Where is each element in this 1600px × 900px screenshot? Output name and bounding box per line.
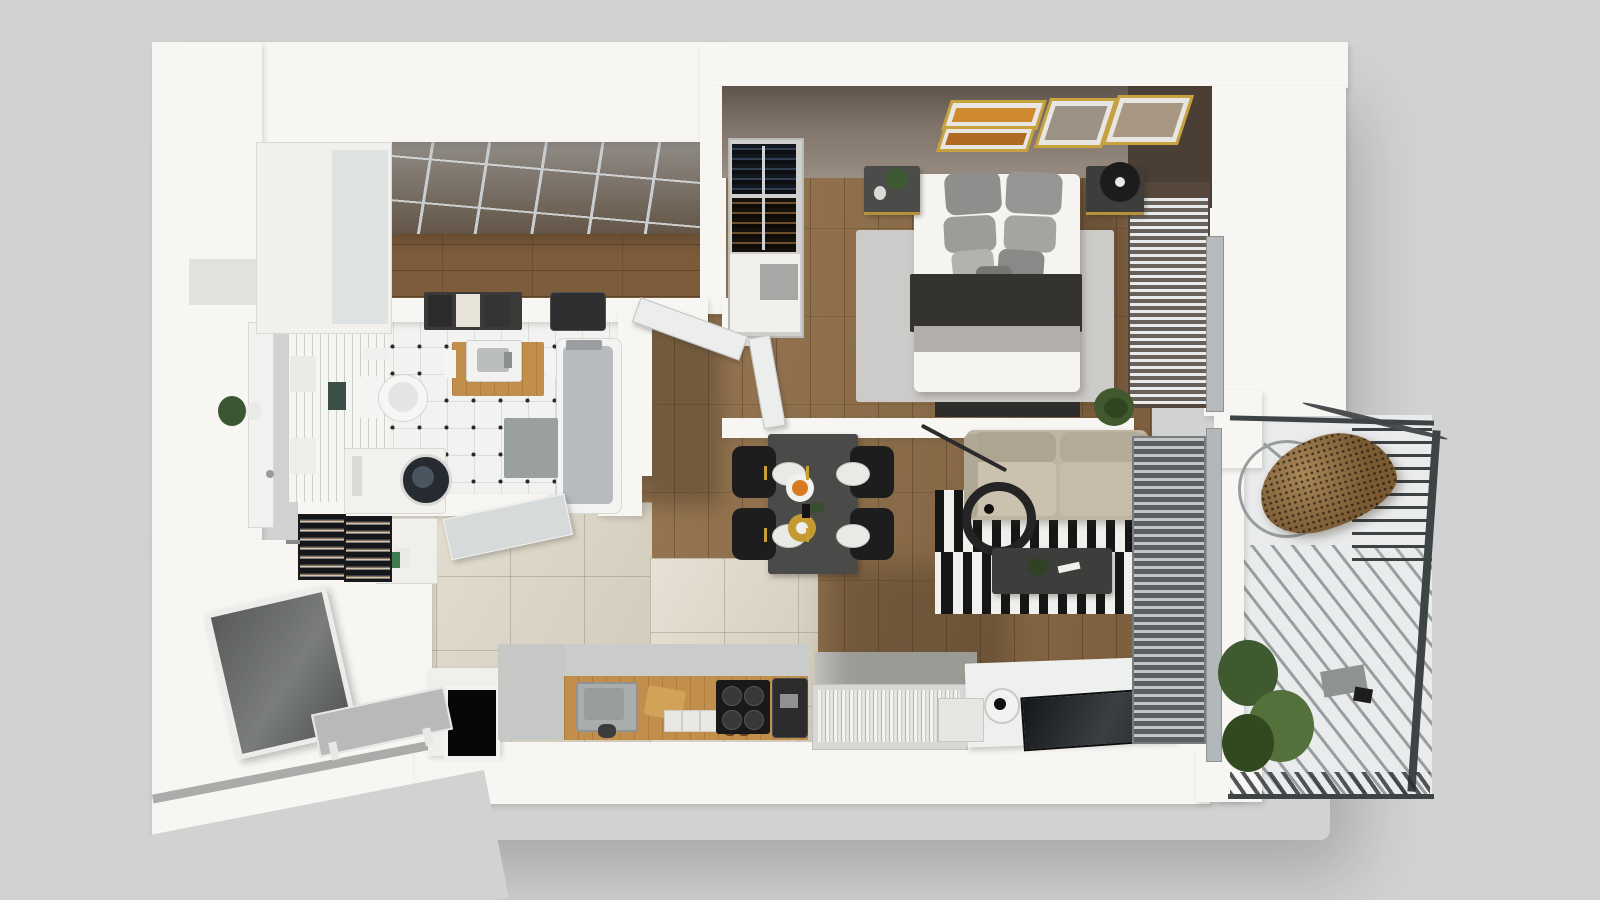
- table-greenery: [810, 502, 824, 513]
- bench-storage-box: [938, 698, 984, 742]
- gold-cutlery: [764, 466, 767, 480]
- bedroom-window-blinds: [1130, 198, 1208, 404]
- bed-pillow: [943, 215, 997, 254]
- bench-towel-dark: [428, 295, 452, 327]
- bedroom-corner-plant-leaf: [1104, 398, 1128, 418]
- shower-room-vase: [246, 402, 262, 420]
- balcony-floor-item: [1353, 687, 1373, 704]
- shower-room-plant: [218, 396, 246, 426]
- bathtub-faucet: [566, 340, 602, 350]
- bath-mat: [504, 418, 558, 478]
- dining-chair: [732, 508, 776, 560]
- coat-rack-hangers: [344, 516, 392, 582]
- coat-rack-hangers: [298, 514, 346, 580]
- place-setting-plate: [836, 524, 870, 548]
- bed-pillow: [944, 170, 1003, 216]
- hob-burner: [744, 686, 764, 706]
- door-shower-room: [248, 322, 274, 528]
- picture-frame-2: [936, 126, 1036, 152]
- bathtub-basin: [563, 346, 613, 504]
- kitchen-counter-gray: [498, 644, 570, 740]
- bed-gray-blanket: [914, 326, 1080, 352]
- canister: [664, 710, 682, 732]
- bedroom-low-console: [935, 402, 1080, 417]
- floorplan-render: [0, 0, 1600, 900]
- washing-machine-door-glass: [412, 466, 434, 488]
- kitchen-faucet: [598, 724, 616, 738]
- door-shower-handle: [266, 470, 274, 478]
- kitchen-sink-basin: [584, 688, 624, 720]
- living-window-glass: [1206, 428, 1222, 762]
- bathroom-towel-shelf: [290, 438, 316, 474]
- nightstand-vase: [874, 186, 886, 200]
- hob-burner: [744, 710, 764, 730]
- entrance-doorway: [444, 686, 500, 760]
- hob-burner: [722, 710, 742, 730]
- coffee-table: [992, 548, 1112, 594]
- living-window-louvers: [1134, 438, 1204, 742]
- suitcase: [550, 292, 606, 331]
- hob-burner: [722, 686, 742, 706]
- balcony-railing-bottom-edge: [1228, 794, 1434, 799]
- arc-lamp-hub: [984, 504, 994, 514]
- dining-chair: [732, 446, 776, 498]
- wall-corridor: [618, 308, 652, 476]
- coffee-machine-tray: [780, 694, 798, 708]
- closet-cabinet-glass: [332, 150, 388, 324]
- bathroom-wall-art: [328, 382, 346, 410]
- gold-cutlery: [764, 528, 767, 542]
- toilet-seat: [388, 382, 418, 412]
- place-setting-plate: [836, 462, 870, 486]
- coffee-table-plant: [1028, 558, 1048, 576]
- bedroom-window-glass: [1206, 236, 1224, 412]
- nightstand-right-gold-leg: [1086, 212, 1144, 215]
- gold-cutlery: [806, 528, 809, 542]
- towel-rail-left: [444, 350, 456, 378]
- coat-rack-rod: [286, 540, 300, 544]
- washing-machine-panel: [352, 456, 362, 496]
- bathroom-towel-shelf: [290, 356, 316, 392]
- toilet-tank: [360, 376, 380, 418]
- bed-pillow: [1003, 215, 1056, 253]
- bed-pillow: [1005, 171, 1063, 216]
- fruit-oranges: [792, 480, 808, 496]
- nightstand-left-gold-leg: [864, 212, 920, 215]
- gold-cutlery: [806, 466, 809, 480]
- picture-frame-4: [1102, 95, 1194, 145]
- wall-outer-right: [1204, 86, 1346, 416]
- table-fan-hub: [1115, 177, 1125, 187]
- toilet-paper-holder: [362, 348, 390, 360]
- table-bottle: [802, 504, 810, 518]
- balcony-railing-bottom-band: [1230, 772, 1430, 796]
- bench-towel-dark2: [484, 295, 510, 327]
- bench-towel-white: [456, 294, 480, 327]
- canister: [682, 710, 700, 732]
- wall-outer-bottom: [415, 742, 1210, 804]
- nightstand-plant: [886, 168, 908, 190]
- balcony-plant: [1222, 714, 1274, 772]
- wardrobe-storage-cube: [760, 264, 798, 300]
- wardrobe-rod: [762, 146, 765, 250]
- wall-outer-top-right: [700, 42, 1348, 88]
- vanity-faucet: [504, 352, 512, 368]
- bench-vase-hole: [994, 698, 1006, 710]
- arc-lamp-shade: [962, 482, 1036, 556]
- coffee-machine: [772, 678, 808, 738]
- bed-throw-blanket: [910, 274, 1082, 332]
